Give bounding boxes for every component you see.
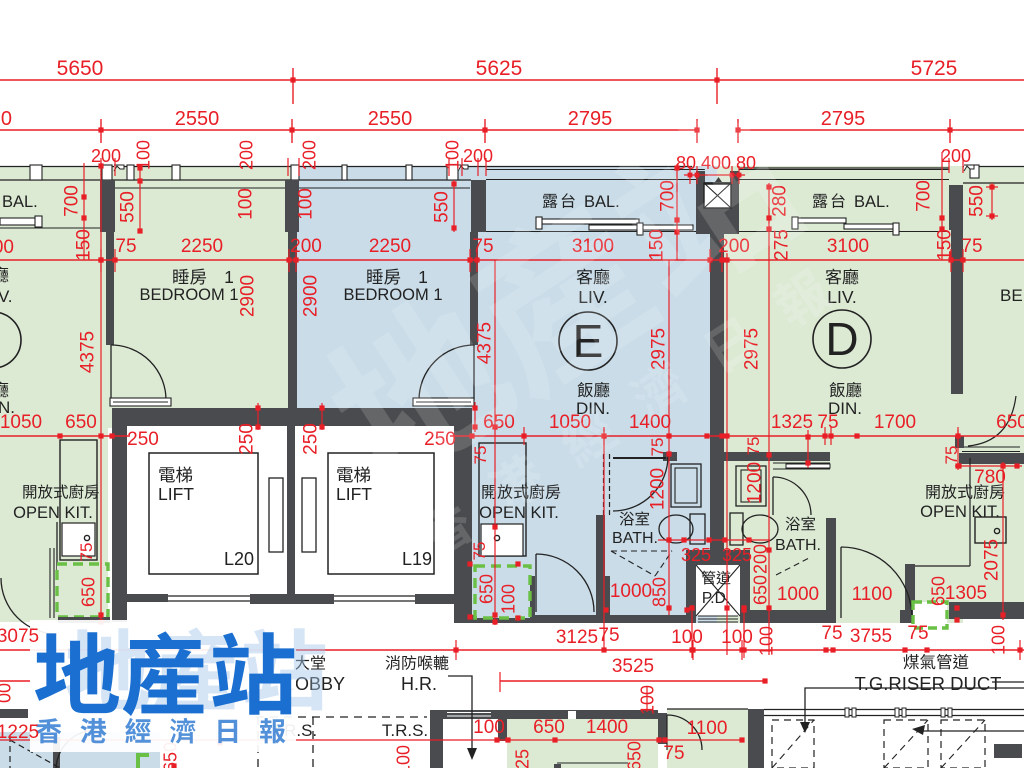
svg-text:00: 00 bbox=[0, 237, 14, 258]
svg-text:2075: 2075 bbox=[982, 539, 1003, 581]
svg-text:75: 75 bbox=[648, 438, 667, 457]
svg-text:650: 650 bbox=[624, 741, 644, 768]
svg-text:75: 75 bbox=[821, 623, 842, 644]
svg-text:D: D bbox=[825, 313, 858, 365]
svg-text:LIFT: LIFT bbox=[336, 484, 372, 504]
svg-text:650: 650 bbox=[476, 574, 496, 604]
svg-text:550: 550 bbox=[118, 191, 139, 223]
svg-text:2250: 2250 bbox=[369, 236, 411, 257]
svg-text:4375: 4375 bbox=[78, 331, 99, 373]
svg-text:200: 200 bbox=[941, 146, 971, 166]
svg-text:200: 200 bbox=[750, 544, 770, 574]
svg-text:2900: 2900 bbox=[238, 275, 259, 317]
svg-text:700: 700 bbox=[914, 180, 935, 212]
svg-text:100: 100 bbox=[393, 745, 413, 768]
svg-text:200: 200 bbox=[290, 236, 322, 257]
svg-text:1100: 1100 bbox=[852, 584, 893, 605]
svg-text:5725: 5725 bbox=[911, 57, 958, 80]
svg-text:LIFT: LIFT bbox=[158, 484, 194, 504]
svg-text:75: 75 bbox=[472, 236, 493, 257]
svg-text:BATH.: BATH. bbox=[775, 537, 821, 554]
svg-text:1100: 1100 bbox=[687, 718, 728, 739]
svg-text:650: 650 bbox=[750, 575, 770, 605]
svg-text:1305: 1305 bbox=[945, 583, 987, 604]
svg-text:1000: 1000 bbox=[777, 584, 819, 605]
svg-text:3125: 3125 bbox=[556, 627, 598, 648]
svg-text:700: 700 bbox=[62, 185, 83, 217]
svg-text:2795: 2795 bbox=[821, 108, 866, 130]
svg-text:100: 100 bbox=[296, 188, 317, 220]
svg-text:2250: 2250 bbox=[181, 236, 223, 257]
svg-text:100: 100 bbox=[473, 717, 505, 738]
svg-text:3525: 3525 bbox=[612, 656, 654, 677]
svg-text:150: 150 bbox=[935, 229, 956, 261]
svg-text:75: 75 bbox=[663, 743, 684, 764]
svg-text:OPEN KIT.: OPEN KIT. bbox=[13, 504, 93, 522]
svg-text:BAL.: BAL. bbox=[854, 193, 890, 211]
svg-text:5625: 5625 bbox=[476, 57, 523, 80]
svg-text:100: 100 bbox=[988, 625, 1008, 655]
svg-text:2550: 2550 bbox=[368, 108, 413, 130]
svg-text:200: 200 bbox=[299, 140, 319, 170]
svg-text:100: 100 bbox=[756, 626, 776, 656]
svg-text:200: 200 bbox=[91, 146, 121, 166]
svg-text:100: 100 bbox=[442, 140, 462, 170]
svg-text:100: 100 bbox=[671, 627, 703, 648]
svg-text:BEDROOM 1: BEDROOM 1 bbox=[343, 286, 442, 304]
svg-text:325: 325 bbox=[681, 545, 711, 565]
svg-text:650: 650 bbox=[533, 717, 565, 738]
svg-text:550: 550 bbox=[432, 191, 453, 223]
svg-text:2900: 2900 bbox=[301, 275, 322, 317]
svg-text:75: 75 bbox=[115, 236, 136, 257]
svg-text:1225: 1225 bbox=[0, 722, 39, 743]
svg-text:250: 250 bbox=[301, 423, 322, 455]
svg-text:OPEN KIT.: OPEN KIT. bbox=[479, 504, 559, 522]
svg-text:250: 250 bbox=[237, 423, 258, 455]
svg-text:150: 150 bbox=[74, 229, 95, 261]
svg-text:75: 75 bbox=[907, 623, 928, 644]
svg-text:00: 00 bbox=[0, 683, 14, 703]
svg-text:L20: L20 bbox=[224, 549, 254, 569]
svg-text:T.G.RISER DUCT: T.G.RISER DUCT bbox=[855, 673, 1002, 694]
svg-text:850: 850 bbox=[649, 577, 669, 607]
svg-text:650: 650 bbox=[65, 412, 97, 433]
svg-text:100: 100 bbox=[133, 140, 153, 170]
svg-text:P.D.: P.D. bbox=[702, 590, 730, 607]
svg-text:1050: 1050 bbox=[0, 412, 42, 433]
svg-text:3075: 3075 bbox=[0, 626, 39, 647]
svg-text:1000: 1000 bbox=[610, 581, 652, 602]
svg-text:BAL.: BAL. bbox=[2, 193, 38, 211]
svg-text:T.R.S.: T.R.S. bbox=[382, 721, 428, 740]
svg-text:OPEN KIT.: OPEN KIT. bbox=[920, 503, 1000, 521]
svg-text:200: 200 bbox=[236, 140, 256, 170]
svg-text:75: 75 bbox=[961, 236, 982, 257]
svg-text:75: 75 bbox=[744, 437, 763, 456]
svg-text:2795: 2795 bbox=[568, 108, 613, 130]
svg-text:1200: 1200 bbox=[745, 462, 766, 504]
svg-text:100: 100 bbox=[498, 584, 518, 614]
svg-text:780: 780 bbox=[974, 467, 1006, 488]
svg-text:550: 550 bbox=[967, 185, 988, 217]
svg-text:1: 1 bbox=[224, 267, 234, 287]
svg-text:1: 1 bbox=[418, 267, 428, 287]
svg-text:100: 100 bbox=[721, 627, 753, 648]
svg-text:H.R.: H.R. bbox=[401, 674, 437, 694]
svg-text:V.: V. bbox=[0, 287, 13, 306]
svg-text:75: 75 bbox=[817, 412, 838, 433]
svg-text:75: 75 bbox=[598, 625, 619, 646]
svg-text:3755: 3755 bbox=[850, 626, 892, 647]
svg-text:250: 250 bbox=[127, 429, 159, 450]
svg-text:BATH.: BATH. bbox=[612, 530, 658, 547]
svg-text:1200: 1200 bbox=[648, 468, 669, 510]
svg-text:100: 100 bbox=[236, 188, 257, 220]
svg-text:650: 650 bbox=[78, 577, 98, 607]
svg-text:5650: 5650 bbox=[57, 57, 104, 80]
svg-text:3100: 3100 bbox=[827, 236, 869, 257]
svg-text:650: 650 bbox=[996, 412, 1024, 433]
svg-text:20: 20 bbox=[0, 108, 12, 130]
svg-text:25: 25 bbox=[512, 749, 532, 768]
svg-text:75: 75 bbox=[77, 543, 96, 562]
svg-text:BED: BED bbox=[1000, 286, 1024, 305]
svg-text:1325: 1325 bbox=[771, 412, 813, 433]
svg-text:1400: 1400 bbox=[586, 717, 628, 738]
svg-text:L19: L19 bbox=[402, 549, 432, 569]
svg-text:75: 75 bbox=[471, 446, 490, 465]
svg-text:BEDROOM 1: BEDROOM 1 bbox=[139, 286, 238, 304]
svg-text:2550: 2550 bbox=[175, 108, 220, 130]
svg-text:1700: 1700 bbox=[874, 412, 916, 433]
svg-text:75: 75 bbox=[470, 542, 489, 561]
